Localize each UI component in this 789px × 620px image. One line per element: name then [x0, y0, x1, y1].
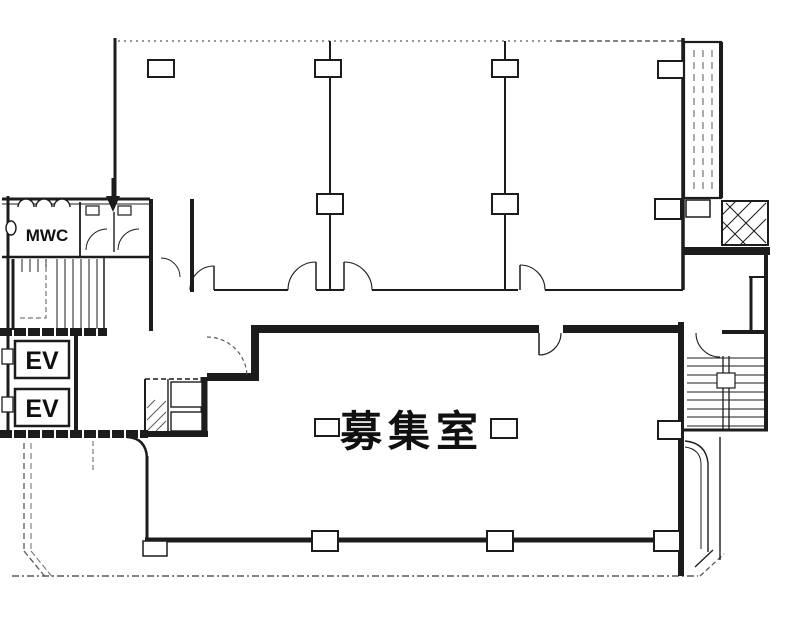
elevator-door-jamb	[2, 349, 13, 364]
toilet-fixture	[86, 206, 99, 215]
column	[315, 60, 341, 77]
column	[487, 531, 513, 551]
floor-plan-canvas: MWC EV EV 募集室	[0, 0, 789, 620]
column	[492, 194, 518, 214]
floor-plan-page: MWC EV EV 募集室	[0, 0, 789, 620]
main-room-label: 募集室	[339, 408, 484, 455]
column	[654, 531, 680, 551]
escalator-shaft	[684, 42, 721, 217]
column	[655, 199, 681, 219]
column	[491, 419, 517, 438]
column	[658, 61, 684, 78]
sink-basins	[18, 199, 70, 207]
column	[312, 531, 338, 551]
column	[658, 421, 682, 439]
elevator-2-label: EV	[25, 395, 59, 423]
column	[492, 60, 518, 77]
column	[315, 419, 339, 436]
elevator-1-label: EV	[25, 347, 59, 375]
fixture	[6, 221, 16, 235]
elevator-door-jamb	[2, 397, 13, 412]
toilet-fixture	[118, 206, 131, 215]
paper	[0, 0, 789, 620]
column	[148, 60, 174, 77]
restroom-label: MWC	[26, 226, 68, 245]
duct-shaft	[722, 201, 768, 245]
column	[317, 194, 343, 214]
column	[143, 541, 167, 556]
